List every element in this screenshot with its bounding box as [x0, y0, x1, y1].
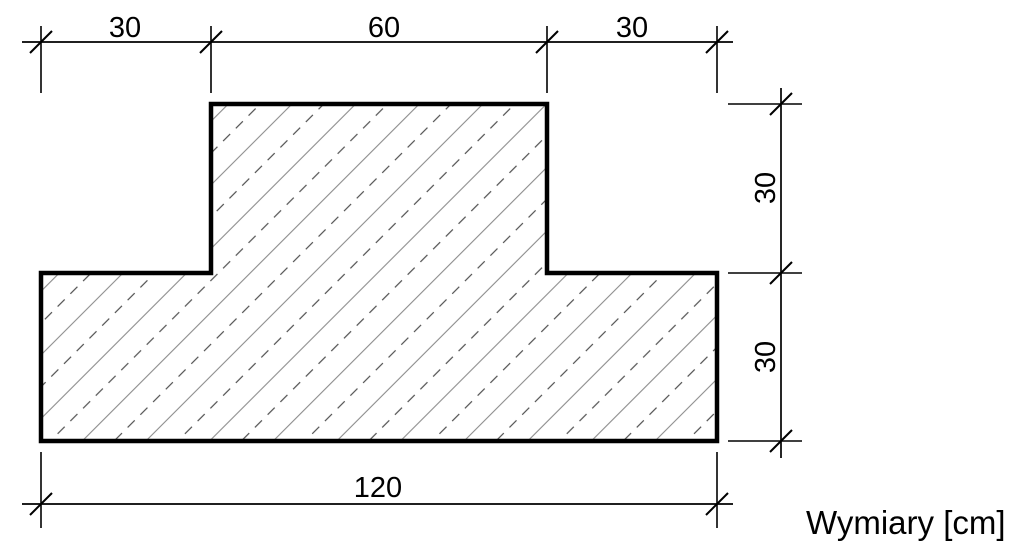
t-section-shape	[41, 104, 717, 441]
dim-chain-right: 30 30	[728, 88, 802, 458]
dim-label-top-middle: 60	[368, 12, 400, 44]
dim-label-top-right: 30	[616, 12, 648, 44]
dim-label-bottom: 120	[354, 472, 402, 504]
dim-label-right-lower: 30	[750, 341, 782, 373]
drawing-canvas: 30 60 30 30 30 120 Wymiary [cm]	[0, 0, 1030, 556]
dim-label-top-left: 30	[109, 12, 141, 44]
dim-label-right-upper: 30	[750, 172, 782, 204]
dim-chain-bottom: 120	[22, 452, 733, 528]
dim-chain-top: 30 60 30	[22, 12, 733, 93]
technical-drawing: 30 60 30 30 30 120 Wymiary [cm]	[0, 0, 1030, 556]
drawing-caption: Wymiary [cm]	[806, 504, 1006, 541]
